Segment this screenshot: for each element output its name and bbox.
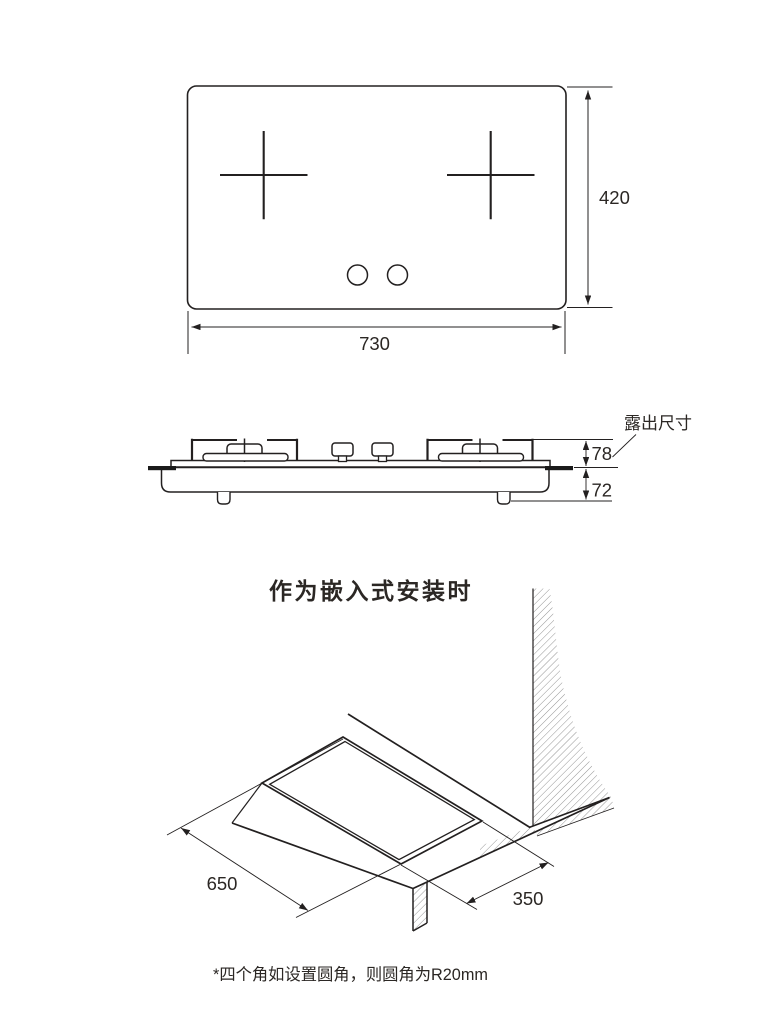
cooktop-body bbox=[162, 468, 550, 493]
cutout-length-dimension-650 bbox=[167, 739, 400, 918]
above-counter-dim-label: 78 bbox=[592, 443, 613, 464]
cutout-depth-dim-label: 350 bbox=[513, 888, 544, 909]
below-counter-dim-label: 72 bbox=[592, 480, 613, 501]
knob-left-profile bbox=[332, 443, 353, 462]
top-view-drawing: 420 730 bbox=[188, 86, 630, 354]
installation-diagram-page: 420 730 bbox=[0, 0, 768, 1024]
foot-right bbox=[498, 492, 511, 504]
counter-front-right-edge bbox=[413, 798, 610, 889]
grate-left bbox=[192, 439, 297, 463]
embedded-install-drawing: 作为嵌入式安装时 650 350 bbox=[167, 578, 614, 931]
knob-right-profile bbox=[372, 443, 393, 462]
exposed-label-leader bbox=[613, 435, 637, 458]
top-height-dim-label: 420 bbox=[599, 187, 630, 208]
exposed-size-label: 露出尺寸 bbox=[624, 414, 692, 433]
foot-left bbox=[218, 492, 231, 504]
glass-edge-right bbox=[545, 466, 573, 470]
top-width-dim-label: 730 bbox=[359, 333, 390, 354]
cutout-length-dim-label: 650 bbox=[207, 873, 238, 894]
cooktop-outline bbox=[188, 86, 567, 309]
corner-radius-footnote: *四个角如设置圆角，则圆角为R20mm bbox=[213, 966, 488, 984]
grate-right bbox=[428, 439, 533, 463]
glass-edge-left bbox=[148, 466, 176, 470]
counter-back-left-edge bbox=[348, 714, 530, 828]
counter-left-cut-edge bbox=[232, 783, 262, 823]
embedded-install-title: 作为嵌入式安装时 bbox=[269, 578, 473, 604]
side-view-drawing: 78 72 露出尺寸 bbox=[148, 414, 692, 504]
installation-diagram: 420 730 bbox=[0, 0, 768, 1024]
